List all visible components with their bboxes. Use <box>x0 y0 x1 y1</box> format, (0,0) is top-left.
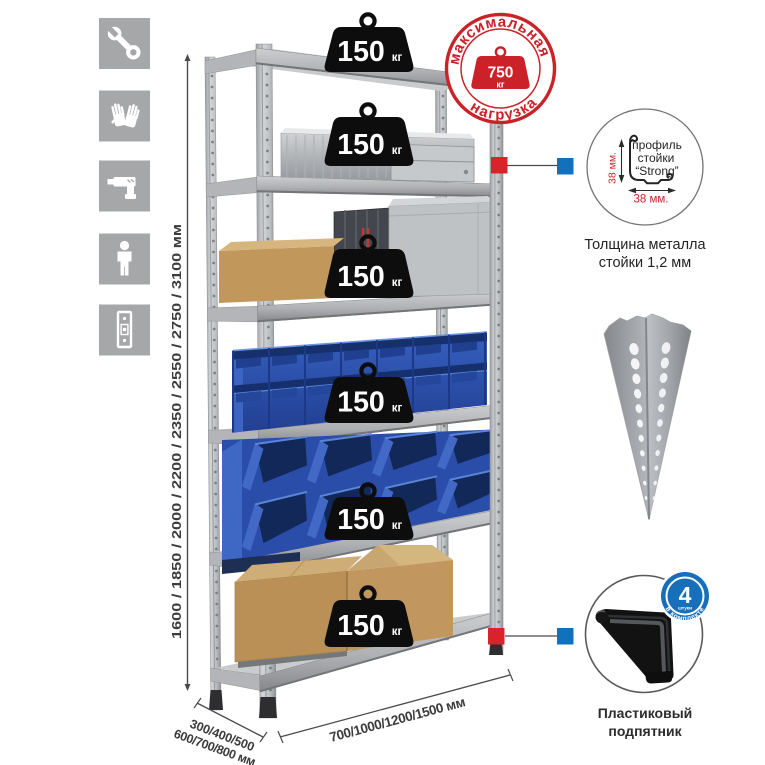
svg-text:150: 150 <box>337 610 385 642</box>
svg-text:38 мм.: 38 мм. <box>634 194 669 206</box>
svg-text:кг: кг <box>392 520 403 532</box>
svg-text:кг: кг <box>392 277 403 289</box>
svg-text:“Strong”: “Strong” <box>635 164 678 178</box>
svg-text:38 мм.: 38 мм. <box>607 152 619 184</box>
svg-text:кг: кг <box>392 626 403 638</box>
svg-text:подпятник: подпятник <box>608 723 682 739</box>
svg-text:кг: кг <box>496 80 505 90</box>
svg-text:150: 150 <box>337 387 385 419</box>
svg-text:150: 150 <box>337 504 385 536</box>
svg-text:4: 4 <box>679 582 692 608</box>
svg-text:150: 150 <box>337 129 385 161</box>
svg-text:штуки: штуки <box>678 606 692 611</box>
svg-text:кг: кг <box>392 52 403 64</box>
svg-text:Толщина металла: Толщина металла <box>584 237 706 253</box>
svg-text:150: 150 <box>337 36 385 68</box>
svg-text:стойки: стойки <box>638 151 675 165</box>
svg-text:150: 150 <box>337 261 385 293</box>
svg-text:профиль: профиль <box>632 138 682 152</box>
svg-text:стойки 1,2 мм: стойки 1,2 мм <box>599 255 692 271</box>
svg-text:Пластиковый: Пластиковый <box>598 705 693 721</box>
svg-text:кг: кг <box>392 145 403 157</box>
svg-text:кг: кг <box>392 403 403 415</box>
svg-text:1600 / 1850 / 2000 / 2200 / 23: 1600 / 1850 / 2000 / 2200 / 2350 / 2550 … <box>169 224 184 639</box>
